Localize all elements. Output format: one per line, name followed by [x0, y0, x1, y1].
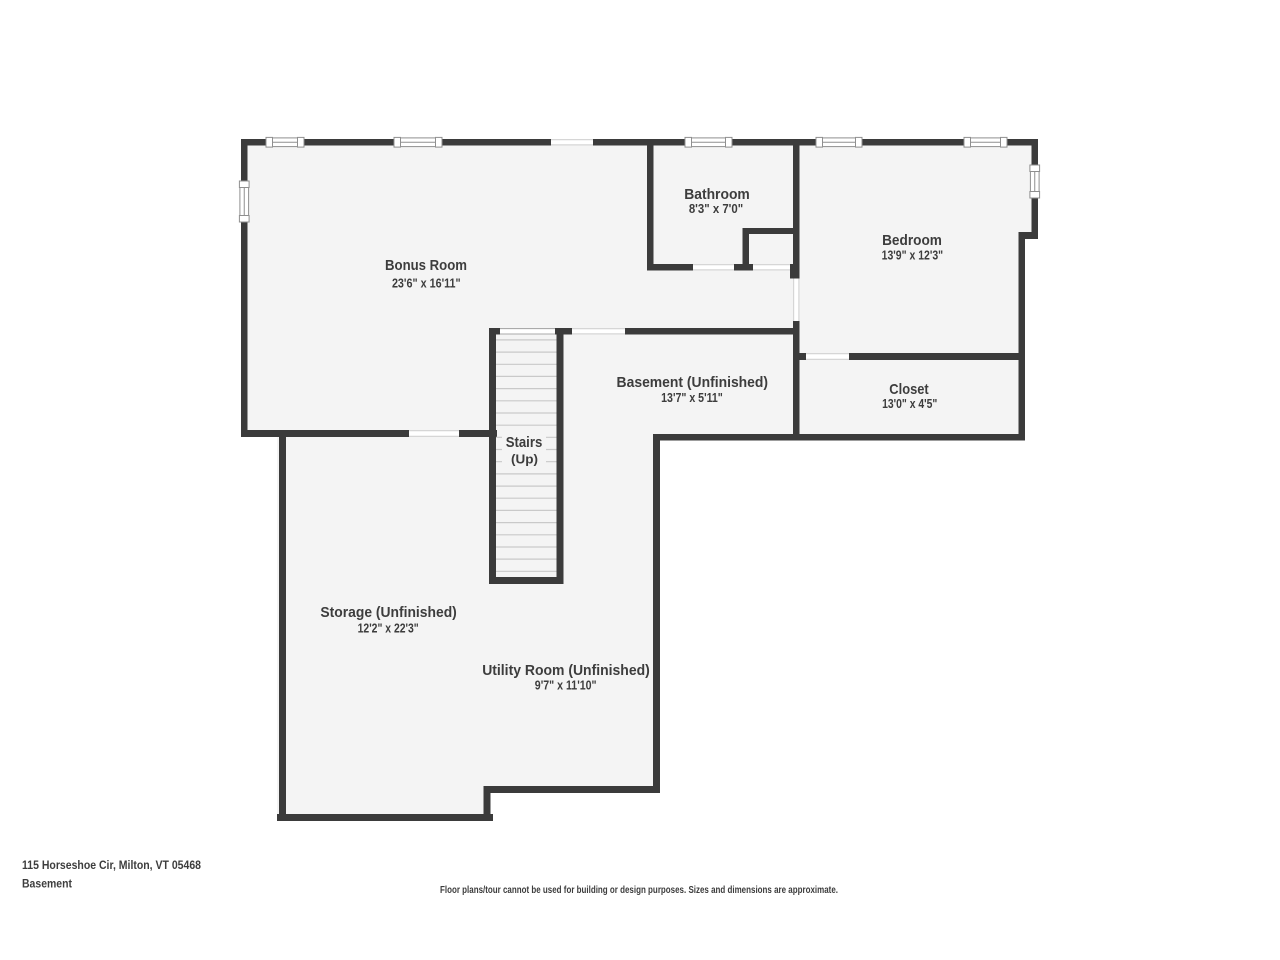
- svg-text:13'7" x 5'11": 13'7" x 5'11": [661, 391, 723, 405]
- svg-text:Basement: Basement: [22, 877, 72, 891]
- svg-text:Basement (Unfinished): Basement (Unfinished): [617, 374, 769, 391]
- svg-text:13'0" x 4'5": 13'0" x 4'5": [882, 397, 937, 411]
- svg-text:Closet: Closet: [889, 381, 928, 398]
- svg-text:Stairs: Stairs: [506, 434, 543, 451]
- svg-text:115 Horseshoe Cir, Milton, VT: 115 Horseshoe Cir, Milton, VT 05468: [22, 858, 201, 872]
- svg-text:Bedroom: Bedroom: [882, 232, 942, 249]
- svg-text:Utility Room (Unfinished): Utility Room (Unfinished): [482, 662, 650, 679]
- svg-text:Bathroom: Bathroom: [684, 186, 750, 203]
- svg-text:(Up): (Up): [511, 451, 538, 466]
- svg-text:Storage (Unfinished): Storage (Unfinished): [320, 604, 456, 621]
- svg-text:8'3" x 7'0": 8'3" x 7'0": [689, 202, 743, 216]
- svg-text:Bonus Room: Bonus Room: [385, 257, 467, 274]
- svg-text:12'2" x 22'3": 12'2" x 22'3": [358, 621, 419, 635]
- svg-text:9'7" x 11'10": 9'7" x 11'10": [535, 678, 597, 692]
- svg-text:Floor plans/tour cannot be use: Floor plans/tour cannot be used for buil…: [440, 885, 838, 896]
- svg-text:13'9" x 12'3": 13'9" x 12'3": [882, 249, 944, 263]
- svg-text:23'6" x 16'11": 23'6" x 16'11": [392, 276, 461, 290]
